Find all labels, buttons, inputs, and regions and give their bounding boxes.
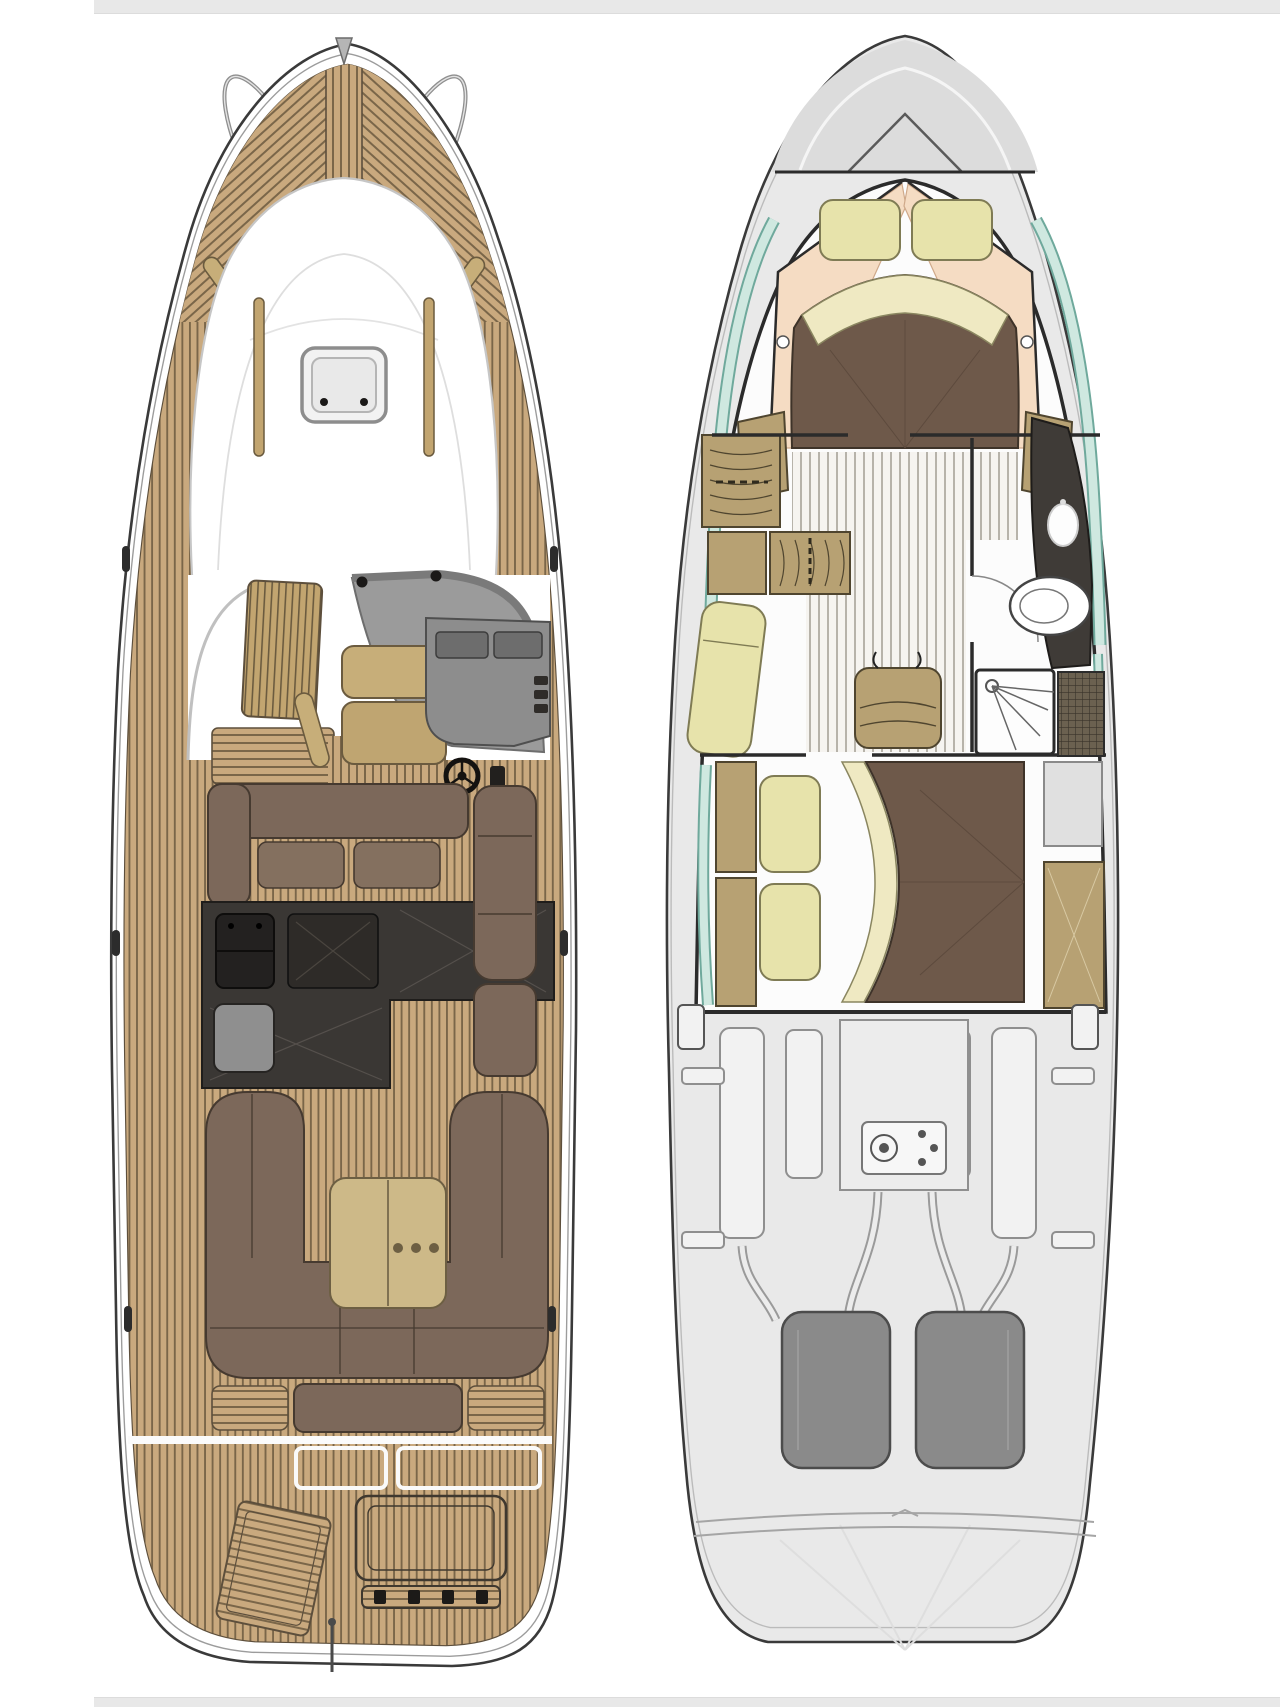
roof-hatch <box>302 348 386 422</box>
faucet-dot-2 <box>256 923 262 929</box>
v-berth-pillow-port <box>820 200 900 260</box>
helm-seat-lounge <box>474 984 536 1076</box>
reading-light-starboard <box>1021 336 1033 348</box>
instrument-screen-right <box>494 632 542 658</box>
helm-seat <box>474 786 536 1076</box>
reading-light-port <box>777 336 789 348</box>
foredeck <box>772 40 1038 172</box>
aft-cabin <box>716 762 1104 1008</box>
stringer-port-outer <box>720 1028 764 1238</box>
stringer-starboard-outer <box>992 1028 1036 1238</box>
stringer-port-inner <box>786 1030 822 1178</box>
sofa-cushion-1 <box>258 842 344 888</box>
sofa-cushion-2 <box>354 842 440 888</box>
salon-sofa <box>208 784 468 906</box>
foredeck-surface <box>772 40 1038 172</box>
aft-sunpad <box>294 1384 462 1432</box>
transom-bench-starboard <box>468 1386 544 1430</box>
cockpit-table <box>330 1178 446 1308</box>
vanity-sink <box>1048 504 1078 546</box>
main-deck-floorplan <box>100 30 580 1680</box>
cabinet-3 <box>708 532 766 594</box>
genset <box>862 1122 946 1174</box>
lower-deck-floorplan <box>620 20 1160 1680</box>
yacht-floorplan-page <box>0 0 1280 1707</box>
mosaic-tile <box>1058 672 1104 756</box>
aft-cabinet-1 <box>716 762 756 872</box>
toilet <box>1010 577 1090 635</box>
sofa-armrest <box>208 784 250 906</box>
refrigerator <box>214 1004 274 1072</box>
bottom-divider <box>94 1697 1280 1707</box>
throttle <box>490 766 505 788</box>
transom-bench-port <box>212 1386 288 1430</box>
aft-locker-gray <box>1044 762 1102 846</box>
table-hinges <box>393 1243 439 1253</box>
top-divider <box>94 0 1280 14</box>
aft-pillow-1 <box>760 776 820 872</box>
switch-panel <box>534 676 548 713</box>
aft-pillow-2 <box>760 884 820 980</box>
faucet-dot <box>228 923 234 929</box>
aft-cabinet-2 <box>716 878 756 1006</box>
v-berth-pillow-starboard <box>912 200 992 260</box>
instrument-screen-left <box>436 632 488 658</box>
